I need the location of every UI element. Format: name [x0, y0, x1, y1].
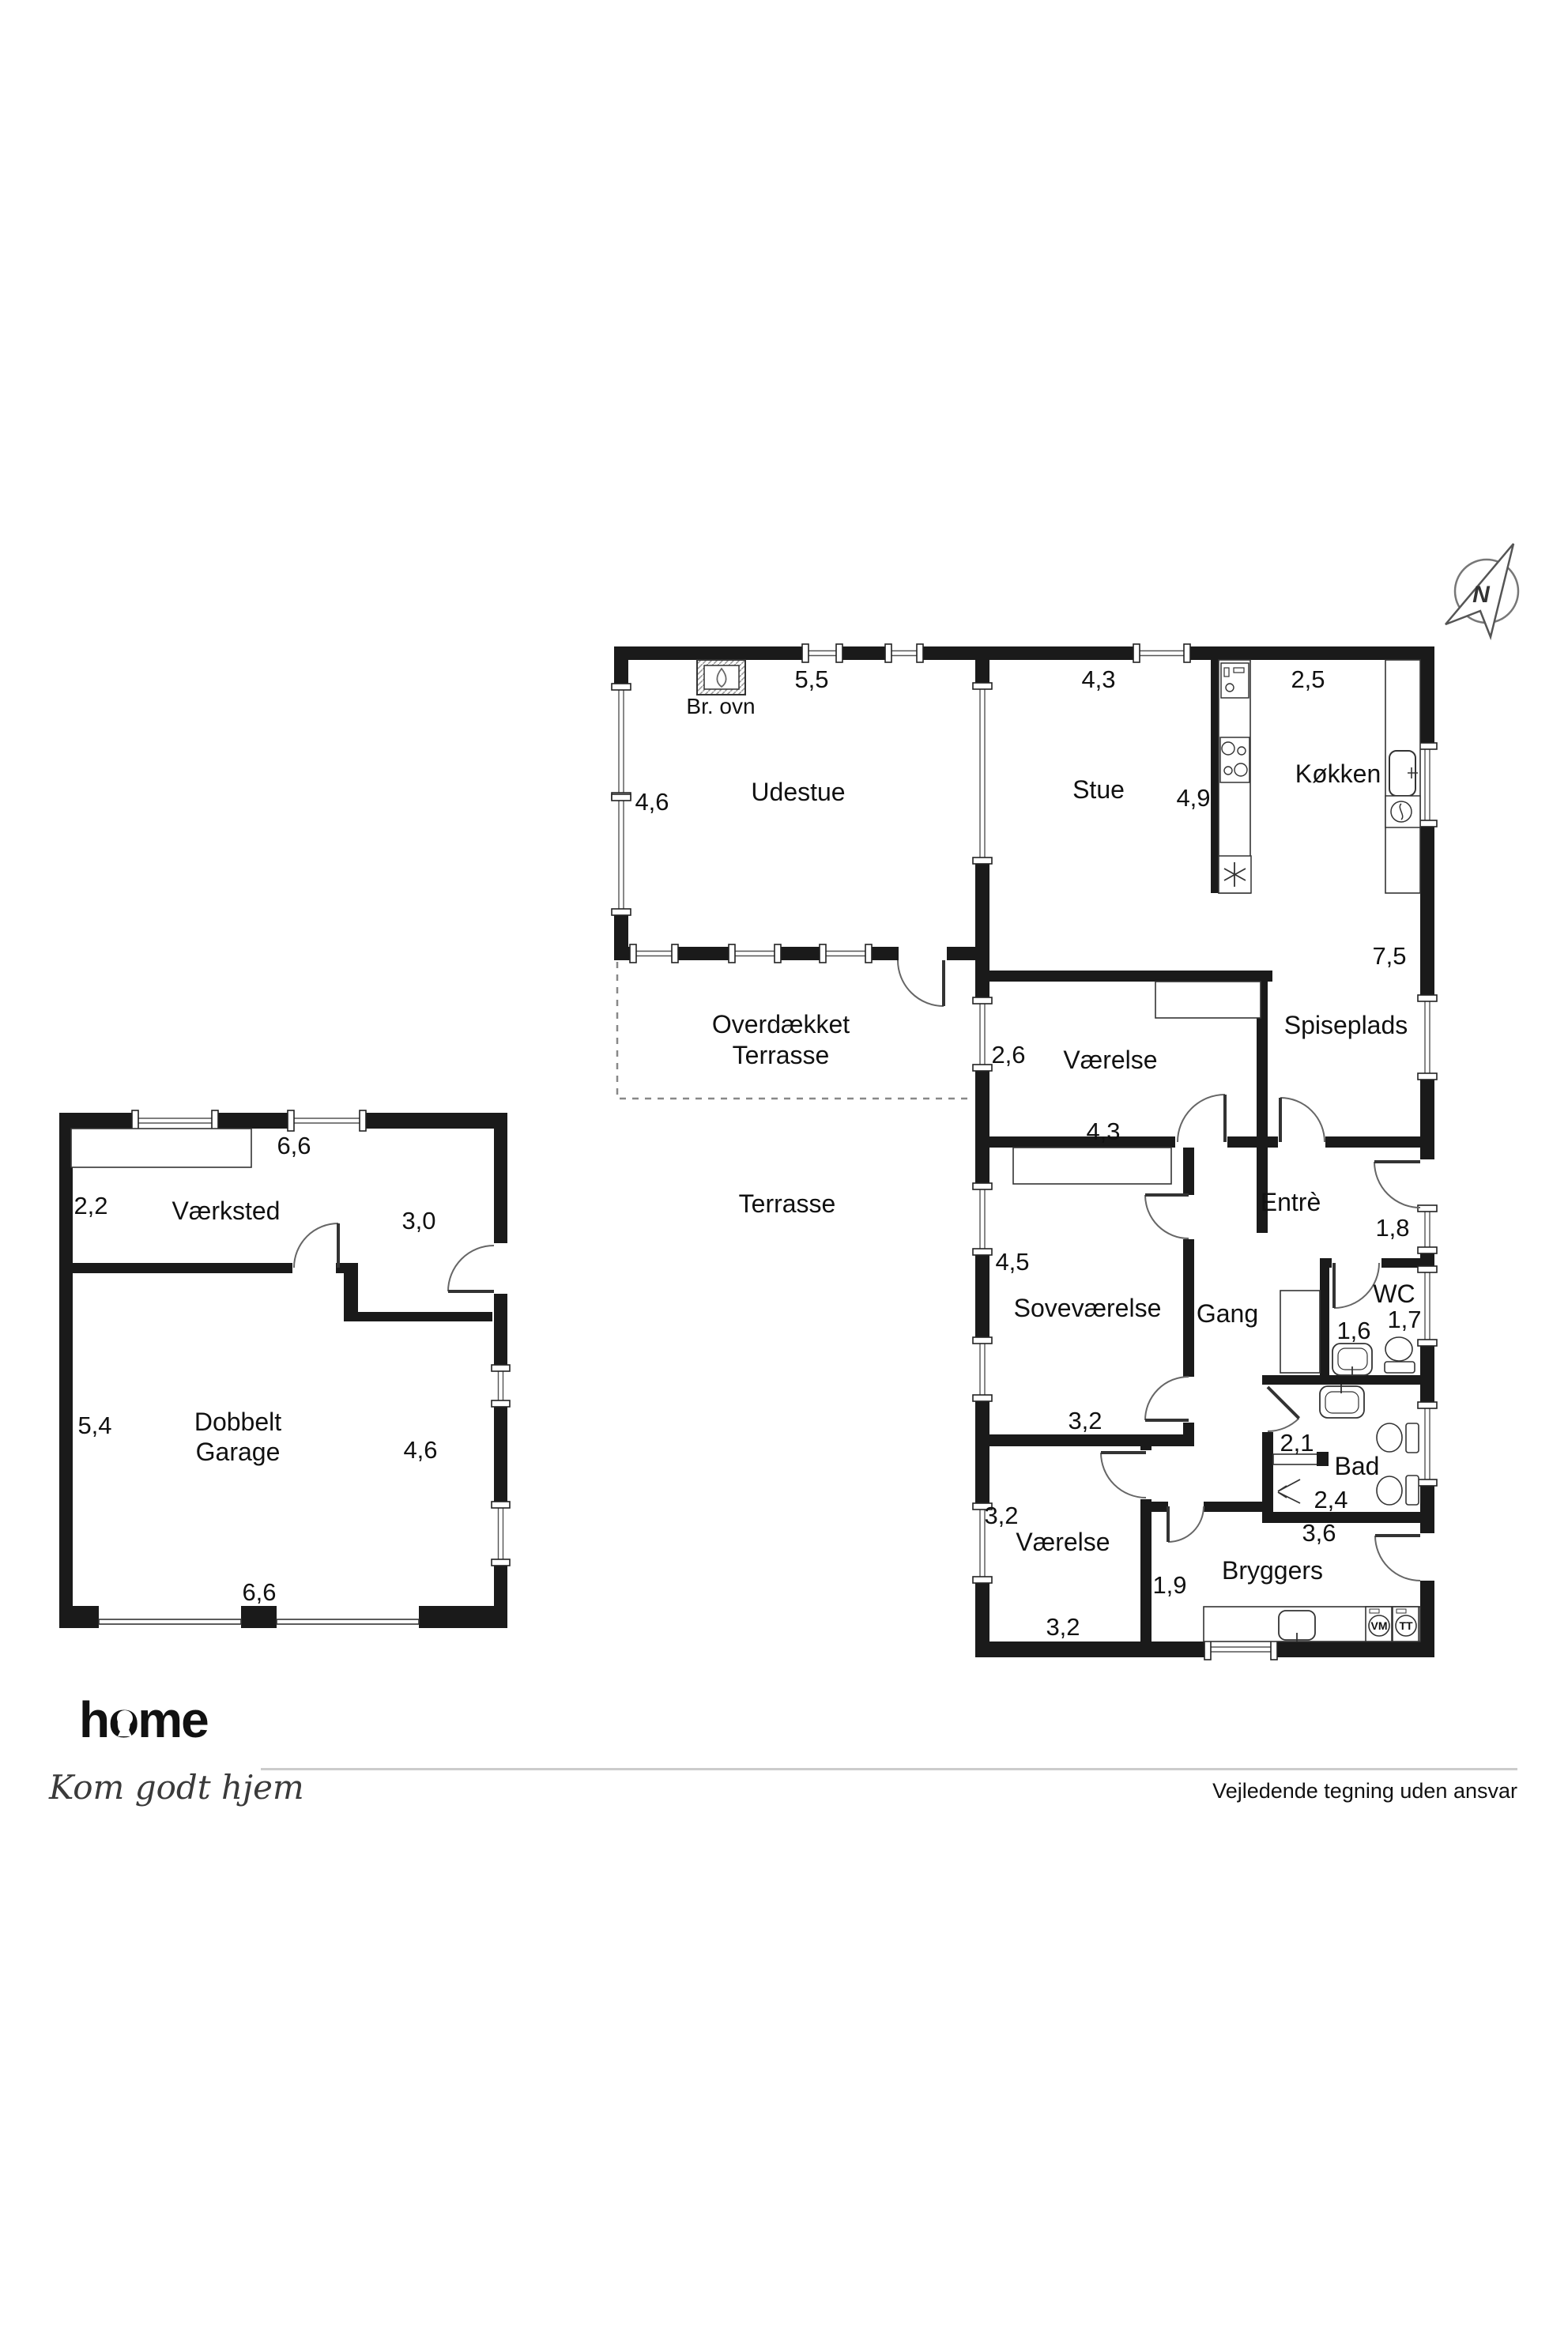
- door-opening: [1420, 1159, 1434, 1208]
- window-end-cap: [612, 684, 631, 690]
- window: [975, 1185, 989, 1253]
- room-label-terrasse: Terrasse: [739, 1189, 836, 1218]
- window-end-cap: [1418, 1205, 1437, 1212]
- window-end-cap: [212, 1110, 218, 1131]
- door-opening: [1183, 1377, 1194, 1423]
- door-opening: [1175, 1136, 1227, 1148]
- dim-label-vaerelse-top-w: 4,3: [1086, 1118, 1120, 1145]
- washbasin-icon: [1332, 1344, 1372, 1375]
- room-label-vaerelse-bottom: Værelse: [1016, 1528, 1110, 1556]
- page-background: [0, 0, 1568, 2352]
- wall-segment: [1320, 1268, 1329, 1375]
- room-label-vaerelse-top: Værelse: [1063, 1046, 1157, 1074]
- window: [614, 797, 628, 913]
- dim-label-vaerksted-h: 2,2: [73, 1192, 107, 1219]
- door-opening: [277, 1606, 419, 1628]
- window-end-cap: [802, 644, 808, 662]
- window-end-cap: [973, 1337, 992, 1344]
- window-end-cap: [612, 909, 631, 915]
- door-opening: [99, 1606, 241, 1628]
- dim-label-right-h: 7,5: [1372, 942, 1406, 970]
- washing-machine-label: VM: [1371, 1619, 1388, 1632]
- window-end-cap: [1133, 644, 1140, 662]
- wall-segment: [1211, 646, 1219, 893]
- window-end-cap: [1418, 1266, 1437, 1272]
- wardrobe: [1013, 1148, 1171, 1184]
- wall-segment: [344, 1312, 492, 1321]
- toilet-icon: [1377, 1476, 1419, 1505]
- window-end-cap: [1184, 644, 1190, 662]
- window-end-cap: [885, 644, 891, 662]
- room-label-sovevaerelse: Soveværelse: [1014, 1294, 1162, 1322]
- window-end-cap: [973, 1249, 992, 1255]
- door-opening: [899, 947, 947, 960]
- dim-label-entre-w: 1,8: [1375, 1214, 1409, 1242]
- dim-label-garage-top-w: 6,6: [277, 1132, 311, 1159]
- room-label-br-ovn: Br. ovn: [686, 694, 755, 718]
- window-end-cap: [775, 944, 781, 963]
- room-label-vaerksted: Værksted: [172, 1197, 281, 1225]
- oven-icon: [1221, 663, 1249, 698]
- room-label-stue: Stue: [1072, 775, 1125, 804]
- wall-segment: [59, 1113, 507, 1129]
- room-label-wc: WC: [1373, 1280, 1415, 1308]
- window: [805, 646, 840, 660]
- garage-door: [99, 1619, 241, 1624]
- wall-segment: [975, 1434, 1194, 1446]
- window-end-cap: [973, 683, 992, 689]
- room-label-overdaekket-2: Terrasse: [733, 1041, 830, 1069]
- window-end-cap: [820, 944, 826, 963]
- window-end-cap: [973, 1577, 992, 1583]
- cooktop-icon: [1220, 737, 1249, 782]
- dim-label-vaerelse-bottom-w: 3,2: [1046, 1613, 1080, 1641]
- dim-label-bad-w2: 2,4: [1314, 1486, 1347, 1513]
- window: [1136, 646, 1188, 660]
- dim-label-bad-w1: 2,1: [1280, 1429, 1314, 1457]
- garage-door: [277, 1619, 419, 1624]
- room-label-gang: Gang: [1197, 1299, 1258, 1328]
- home-logo: home: [79, 1691, 208, 1748]
- room-label-bryggers: Bryggers: [1222, 1556, 1323, 1585]
- window-end-cap: [1418, 1479, 1437, 1486]
- window: [888, 646, 921, 660]
- window: [975, 1340, 989, 1399]
- window-end-cap: [612, 794, 631, 801]
- window-end-cap: [1418, 1340, 1437, 1346]
- window-end-cap: [492, 1559, 510, 1566]
- dim-label-sove-w: 3,2: [1068, 1407, 1102, 1434]
- dim-label-udestue-h: 4,6: [635, 788, 669, 816]
- window: [975, 1000, 989, 1069]
- window: [1207, 1641, 1275, 1657]
- window-end-cap: [973, 997, 992, 1004]
- kitchen-sink-icon: [1389, 751, 1418, 796]
- window-end-cap: [1418, 1402, 1437, 1408]
- tumble-dryer-label: TT: [1399, 1619, 1413, 1632]
- window-end-cap: [973, 857, 992, 864]
- window-end-cap: [1418, 1247, 1437, 1253]
- window: [134, 1113, 216, 1129]
- window: [632, 947, 676, 960]
- window-end-cap: [836, 644, 842, 662]
- door-opening: [494, 1243, 507, 1294]
- shower-partition-cap: [1317, 1452, 1329, 1466]
- window-end-cap: [1204, 1639, 1211, 1660]
- window-end-cap: [729, 944, 735, 963]
- window-end-cap: [492, 1502, 510, 1508]
- window-end-cap: [973, 1395, 992, 1401]
- dim-label-stue-h: 4,9: [1176, 784, 1210, 812]
- closet: [1280, 1291, 1320, 1373]
- window: [494, 1504, 507, 1563]
- freezer-icon: [1219, 856, 1251, 893]
- window: [1420, 997, 1434, 1077]
- dim-label-garage-left-h: 5,4: [77, 1412, 111, 1439]
- laundry-sink-icon: [1279, 1611, 1315, 1641]
- window-end-cap: [973, 1065, 992, 1071]
- window: [1420, 1268, 1434, 1344]
- dim-label-garage-bottom-w: 6,6: [242, 1578, 276, 1606]
- dim-label-vaerelse-bottom-h: 3,2: [984, 1502, 1018, 1529]
- dim-label-sove-h: 4,5: [995, 1248, 1029, 1276]
- dim-label-vaerelse-top-h: 2,6: [991, 1041, 1025, 1069]
- door-opening: [1140, 1450, 1151, 1499]
- window-end-cap: [672, 944, 678, 963]
- kitchen-counter-left: [1219, 660, 1251, 893]
- room-label-entre: Entrè: [1261, 1188, 1321, 1216]
- compass-n-label: N: [1472, 582, 1491, 608]
- dim-label-wc-w: 1,6: [1336, 1317, 1370, 1344]
- window-end-cap: [492, 1365, 510, 1371]
- dim-label-koekken-w: 2,5: [1291, 665, 1325, 693]
- window-end-cap: [132, 1110, 138, 1131]
- wall-segment: [1325, 1136, 1434, 1148]
- window-end-cap: [1418, 995, 1437, 1001]
- room-label-koekken: Køkken: [1295, 759, 1381, 788]
- wall-segment: [59, 1113, 73, 1628]
- room-label-spiseplads: Spiseplads: [1284, 1011, 1408, 1039]
- dim-label-garage-right-h: 4,6: [403, 1436, 437, 1464]
- door-opening: [1332, 1258, 1381, 1268]
- window: [1420, 745, 1434, 824]
- window: [731, 947, 778, 960]
- window: [975, 685, 989, 861]
- window: [614, 686, 628, 797]
- room-label-overdaekket-1: Overdækket: [712, 1010, 850, 1038]
- wall-segment: [1268, 1375, 1420, 1385]
- window-end-cap: [973, 1183, 992, 1189]
- dim-label-hall-w: 1,9: [1152, 1571, 1186, 1599]
- door-opening: [1168, 1502, 1204, 1512]
- disclaimer-text: Vejledende tegning uden ansvar: [1212, 1779, 1517, 1803]
- window-end-cap: [917, 644, 923, 662]
- room-label-bad: Bad: [1335, 1452, 1380, 1480]
- door-opening: [1183, 1195, 1194, 1239]
- dim-label-bryggers-w: 3,6: [1302, 1519, 1336, 1547]
- wood-stove-icon: [697, 660, 745, 695]
- workbench: [71, 1129, 251, 1167]
- wardrobe: [1155, 982, 1261, 1018]
- footer-divider: [261, 1768, 1517, 1770]
- window: [1420, 1208, 1434, 1251]
- window-end-cap: [288, 1110, 294, 1131]
- floorplan-svg: N Udestue Stue Køkken Spiseplads Værelse…: [0, 0, 1568, 2352]
- window-end-cap: [630, 944, 636, 963]
- kitchen-counter-right: [1385, 660, 1420, 893]
- window-end-cap: [1271, 1639, 1277, 1660]
- logo-tagline: Kom godt hjem: [48, 1768, 304, 1807]
- floorplan-page: N Udestue Stue Køkken Spiseplads Værelse…: [0, 0, 1568, 2352]
- toilet-icon: [1377, 1423, 1419, 1453]
- door-opening: [1278, 1136, 1325, 1148]
- wall-segment: [614, 646, 1434, 660]
- room-label-udestue: Udestue: [751, 778, 845, 806]
- wall-segment: [1262, 1512, 1420, 1523]
- toilet-icon: [1385, 1337, 1415, 1373]
- dim-label-wc-h: 1,7: [1387, 1306, 1421, 1333]
- wall-segment: [975, 1136, 1278, 1148]
- door-opening: [292, 1263, 336, 1273]
- dim-label-udestue-w: 5,5: [794, 665, 828, 693]
- window: [1420, 1404, 1434, 1483]
- window: [494, 1367, 507, 1404]
- window: [290, 1113, 364, 1129]
- dim-label-stue-w: 4,3: [1081, 665, 1115, 693]
- door-opening: [1420, 1533, 1434, 1581]
- room-label-garage-1: Dobbelt: [194, 1408, 281, 1436]
- window-end-cap: [1418, 1073, 1437, 1080]
- dishwasher-icon: [1385, 796, 1420, 827]
- window-end-cap: [865, 944, 872, 963]
- washbasin-icon: [1320, 1385, 1364, 1418]
- window-end-cap: [360, 1110, 366, 1131]
- dim-label-vaerksted-r: 3,0: [401, 1207, 435, 1234]
- room-label-garage-2: Garage: [196, 1438, 281, 1466]
- wall-segment: [975, 971, 1272, 982]
- window-end-cap: [492, 1400, 510, 1407]
- window: [822, 947, 869, 960]
